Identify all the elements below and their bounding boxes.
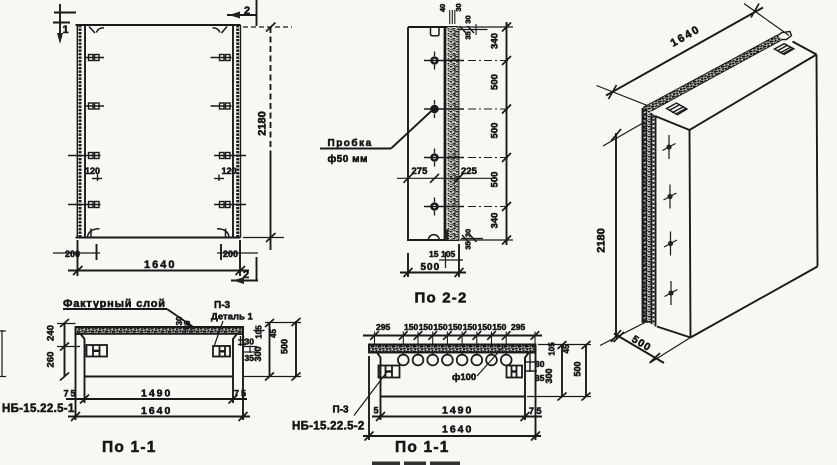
svg-text:1640: 1640 [442, 424, 473, 436]
svg-text:150: 150 [448, 322, 462, 332]
svg-text:30: 30 [535, 359, 545, 369]
svg-text:П-3: П-3 [214, 300, 231, 311]
svg-text:120: 120 [222, 166, 237, 176]
svg-text:260: 260 [46, 352, 57, 368]
svg-text:2: 2 [244, 5, 250, 17]
svg-text:500: 500 [490, 172, 501, 188]
svg-text:150: 150 [419, 322, 433, 332]
svg-text:2180: 2180 [596, 228, 608, 252]
svg-text:7: 7 [529, 406, 534, 416]
svg-text:295: 295 [511, 322, 525, 332]
svg-text:5: 5 [241, 389, 246, 399]
svg-text:2180: 2180 [257, 111, 269, 135]
svg-text:500: 500 [490, 74, 501, 90]
svg-text:1: 1 [63, 24, 69, 36]
svg-text:200: 200 [223, 249, 238, 259]
svg-text:НБ-15.22.5-2: НБ-15.22.5-2 [292, 421, 365, 433]
svg-text:По 2-2: По 2-2 [415, 290, 468, 307]
svg-text:340: 340 [490, 33, 501, 49]
svg-text:НБ-15.22.5-1: НБ-15.22.5-1 [2, 403, 75, 415]
svg-text:ф100: ф100 [452, 372, 476, 383]
svg-text:300: 300 [544, 368, 554, 383]
svg-text:150: 150 [463, 322, 477, 332]
svg-text:7: 7 [64, 389, 69, 399]
svg-text:30: 30 [245, 337, 255, 347]
svg-text:40: 40 [438, 4, 447, 12]
svg-text:105: 105 [548, 342, 557, 356]
svg-text:1640: 1640 [144, 259, 176, 271]
svg-text:35: 35 [464, 241, 473, 249]
svg-text:5: 5 [71, 389, 76, 399]
svg-text:500: 500 [280, 339, 290, 354]
svg-text:15: 15 [429, 249, 439, 259]
svg-text:500: 500 [490, 123, 501, 139]
svg-text:45: 45 [269, 329, 278, 338]
svg-text:7: 7 [234, 389, 239, 399]
svg-text:5: 5 [537, 406, 542, 416]
svg-text:300: 300 [253, 346, 263, 361]
svg-text:200: 200 [65, 249, 80, 259]
svg-text:225: 225 [461, 166, 478, 177]
svg-text:500: 500 [573, 361, 583, 376]
svg-text:105: 105 [441, 249, 455, 259]
svg-text:1640: 1640 [141, 405, 172, 417]
svg-text:150: 150 [478, 322, 492, 332]
svg-text:5: 5 [374, 406, 379, 416]
svg-text:30: 30 [464, 15, 473, 23]
svg-text:30: 30 [454, 3, 463, 11]
svg-text:ф50 мм: ф50 мм [328, 153, 368, 165]
svg-text:105: 105 [255, 325, 264, 339]
svg-text:По 1-1: По 1-1 [102, 439, 157, 456]
svg-text:1490: 1490 [442, 405, 473, 417]
svg-text:Деталь 1: Деталь 1 [211, 312, 253, 323]
svg-text:150: 150 [404, 322, 418, 332]
svg-text:295: 295 [376, 322, 390, 332]
svg-text:Пробка: Пробка [328, 137, 373, 149]
svg-text:150: 150 [433, 322, 447, 332]
svg-text:340: 340 [490, 213, 501, 229]
svg-text:45: 45 [562, 344, 571, 353]
svg-text:40: 40 [183, 320, 192, 329]
svg-text:500: 500 [421, 262, 441, 273]
svg-text:По 1-1: По 1-1 [395, 439, 450, 456]
svg-text:1490: 1490 [141, 388, 172, 400]
svg-text:275: 275 [412, 166, 429, 177]
svg-text:150: 150 [492, 322, 506, 332]
svg-text:30: 30 [464, 229, 473, 237]
svg-text:35: 35 [464, 31, 473, 39]
svg-text:240: 240 [46, 325, 57, 341]
svg-text:П-3: П-3 [333, 405, 350, 416]
